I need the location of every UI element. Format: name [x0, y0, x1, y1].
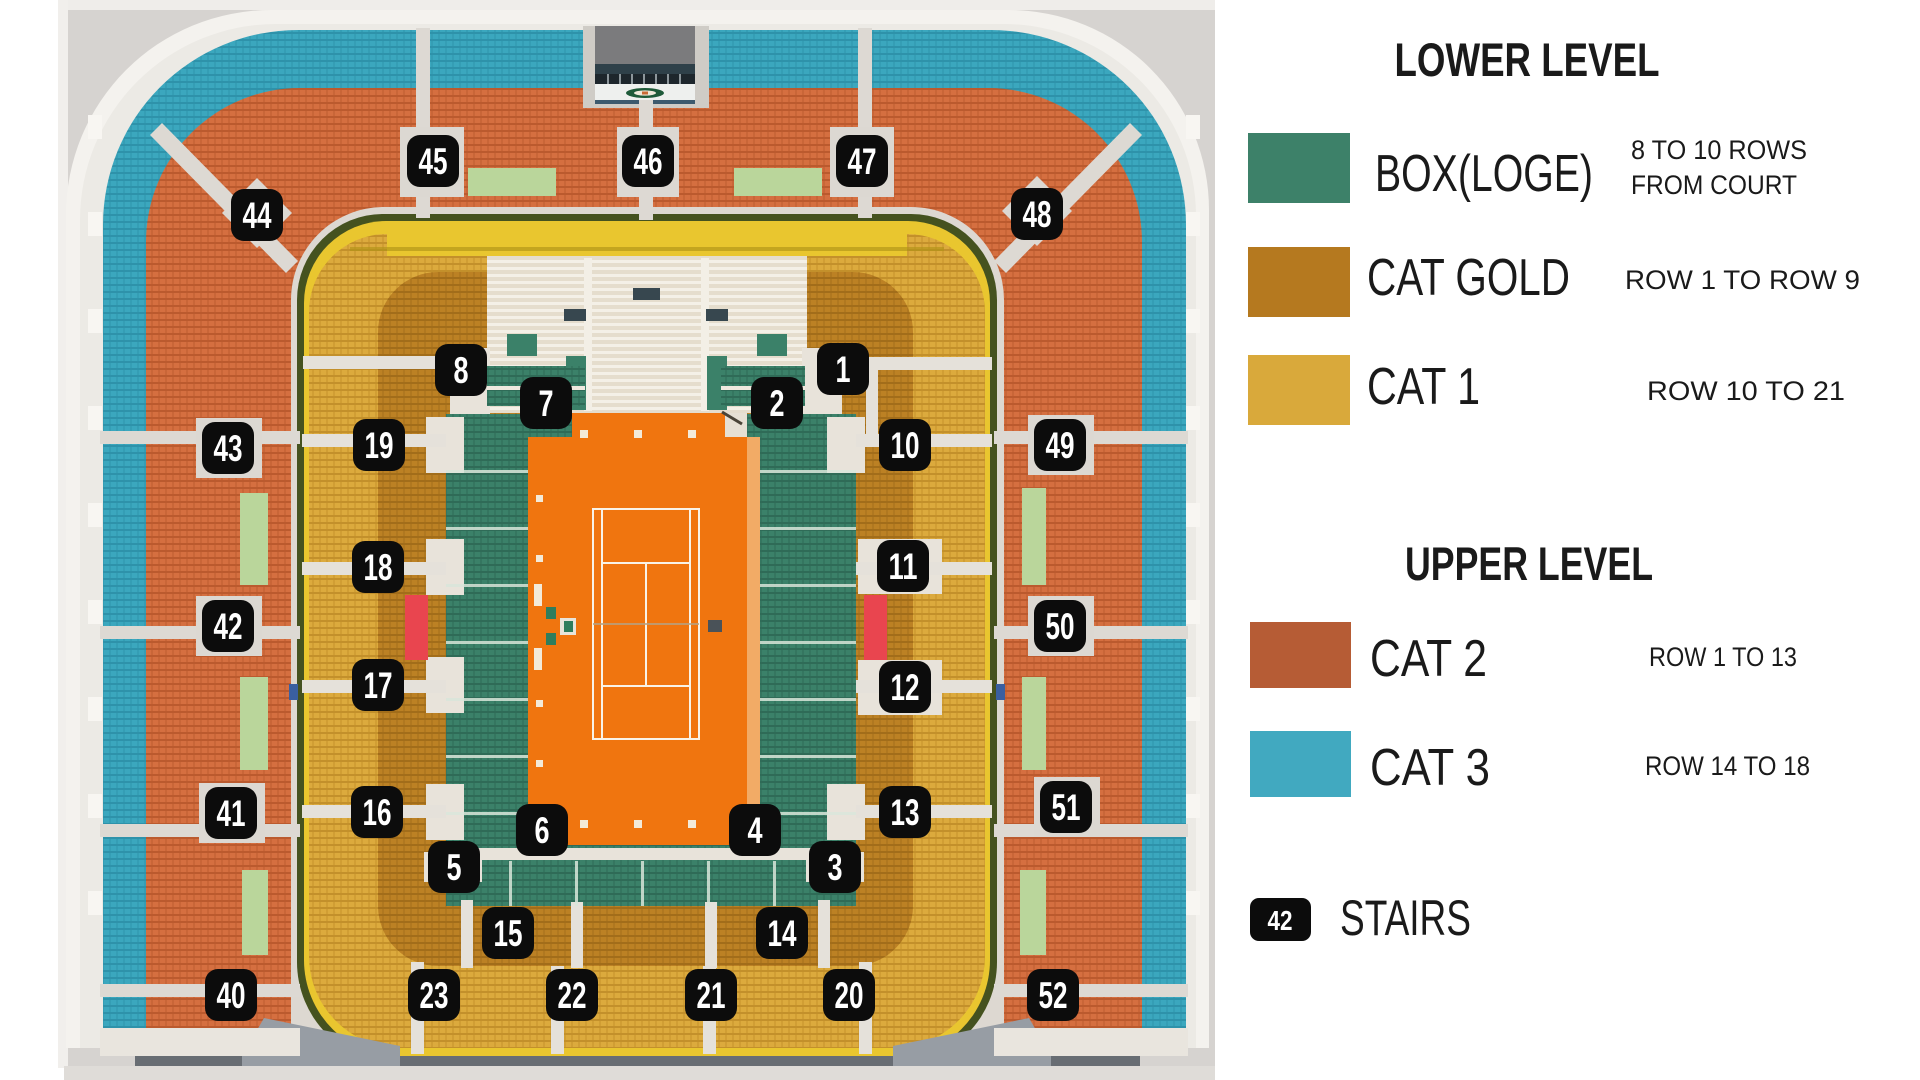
svg-text:BOX(LOGE): BOX(LOGE) — [1375, 145, 1593, 203]
svg-text:CAT 3: CAT 3 — [1370, 739, 1490, 797]
svg-text:23: 23 — [420, 975, 449, 1016]
svg-text:11: 11 — [889, 546, 918, 587]
svg-text:47: 47 — [848, 141, 877, 182]
svg-text:20: 20 — [835, 975, 864, 1016]
svg-text:LOWER LEVEL: LOWER LEVEL — [1395, 33, 1660, 86]
svg-text:10: 10 — [891, 425, 920, 466]
svg-text:3: 3 — [828, 847, 843, 888]
svg-text:1: 1 — [836, 349, 851, 390]
svg-text:42: 42 — [214, 606, 243, 647]
svg-text:45: 45 — [419, 141, 448, 182]
svg-text:FROM COURT: FROM COURT — [1631, 170, 1797, 200]
svg-text:8: 8 — [454, 350, 469, 391]
svg-text:52: 52 — [1039, 975, 1068, 1016]
svg-text:5: 5 — [447, 847, 462, 888]
svg-text:STAIRS: STAIRS — [1340, 890, 1471, 946]
svg-text:17: 17 — [364, 665, 393, 706]
svg-text:41: 41 — [217, 793, 246, 834]
svg-text:19: 19 — [365, 425, 394, 466]
svg-text:44: 44 — [243, 195, 272, 236]
svg-text:15: 15 — [494, 913, 523, 954]
svg-text:13: 13 — [891, 792, 920, 833]
svg-text:43: 43 — [214, 428, 243, 469]
svg-text:21: 21 — [697, 975, 726, 1016]
svg-text:ROW 1 TO ROW 9: ROW 1 TO ROW 9 — [1625, 265, 1860, 295]
svg-text:CAT 1: CAT 1 — [1367, 358, 1480, 416]
svg-text:50: 50 — [1046, 606, 1075, 647]
svg-text:CAT 2: CAT 2 — [1370, 630, 1487, 688]
svg-text:14: 14 — [768, 913, 797, 954]
svg-text:49: 49 — [1046, 425, 1075, 466]
svg-text:4: 4 — [748, 810, 763, 851]
svg-text:ROW 1 TO 13: ROW 1 TO 13 — [1649, 642, 1797, 672]
svg-text:ROW 10 TO 21: ROW 10 TO 21 — [1647, 376, 1845, 406]
svg-text:42: 42 — [1268, 905, 1293, 936]
svg-text:12: 12 — [891, 667, 920, 708]
svg-text:8 TO 10 ROWS: 8 TO 10 ROWS — [1631, 135, 1807, 165]
svg-text:51: 51 — [1052, 787, 1081, 828]
svg-text:40: 40 — [217, 975, 246, 1016]
svg-text:7: 7 — [539, 383, 554, 424]
svg-text:2: 2 — [770, 383, 785, 424]
svg-text:UPPER LEVEL: UPPER LEVEL — [1405, 537, 1653, 590]
svg-text:22: 22 — [558, 975, 587, 1016]
svg-text:18: 18 — [364, 547, 393, 588]
svg-text:46: 46 — [634, 141, 663, 182]
svg-text:6: 6 — [535, 810, 550, 851]
svg-text:CAT GOLD: CAT GOLD — [1367, 249, 1570, 307]
svg-text:16: 16 — [363, 792, 392, 833]
svg-text:ROW 14 TO 18: ROW 14 TO 18 — [1645, 751, 1810, 781]
svg-text:48: 48 — [1023, 194, 1052, 235]
